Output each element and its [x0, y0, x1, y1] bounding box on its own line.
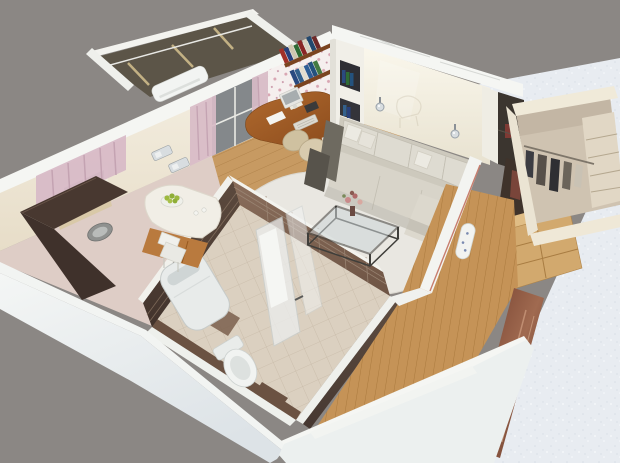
- cubby-book: [350, 73, 354, 86]
- apartment-render-stage: Balcony: [0, 0, 620, 463]
- apartment-render: Balcony: [0, 0, 620, 463]
- cubby-book: [346, 72, 350, 85]
- cubby-book: [342, 70, 346, 83]
- niche-column: [482, 86, 498, 164]
- shelf-unit-side: [330, 38, 336, 136]
- glassware: [202, 208, 206, 212]
- cubby-book: [347, 107, 351, 118]
- cubby-book: [343, 105, 347, 116]
- glassware: [194, 211, 198, 215]
- curtain-panel: [190, 95, 216, 166]
